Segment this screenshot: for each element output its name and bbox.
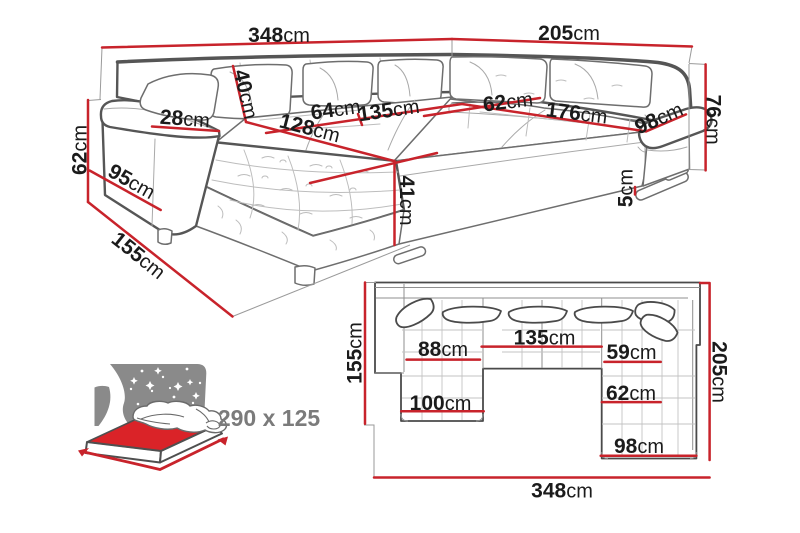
svg-text:100cm: 100cm [410,392,472,415]
svg-text:98cm: 98cm [614,435,664,458]
svg-text:41cm: 41cm [395,175,418,225]
svg-text:62cm: 62cm [69,125,92,175]
svg-text:135cm: 135cm [514,327,576,350]
svg-text:28cm: 28cm [159,106,211,132]
svg-text:88cm: 88cm [418,338,468,361]
svg-text:205cm: 205cm [538,22,600,45]
svg-text:5cm: 5cm [615,169,638,207]
svg-text:76cm: 76cm [702,95,725,145]
svg-text:59cm: 59cm [606,341,656,364]
svg-text:62cm: 62cm [606,382,656,405]
svg-text:290 x 125: 290 x 125 [218,405,321,431]
svg-text:205cm: 205cm [708,341,731,403]
svg-text:348cm: 348cm [531,480,593,503]
svg-text:348cm: 348cm [248,24,310,47]
svg-text:155cm: 155cm [344,322,367,384]
